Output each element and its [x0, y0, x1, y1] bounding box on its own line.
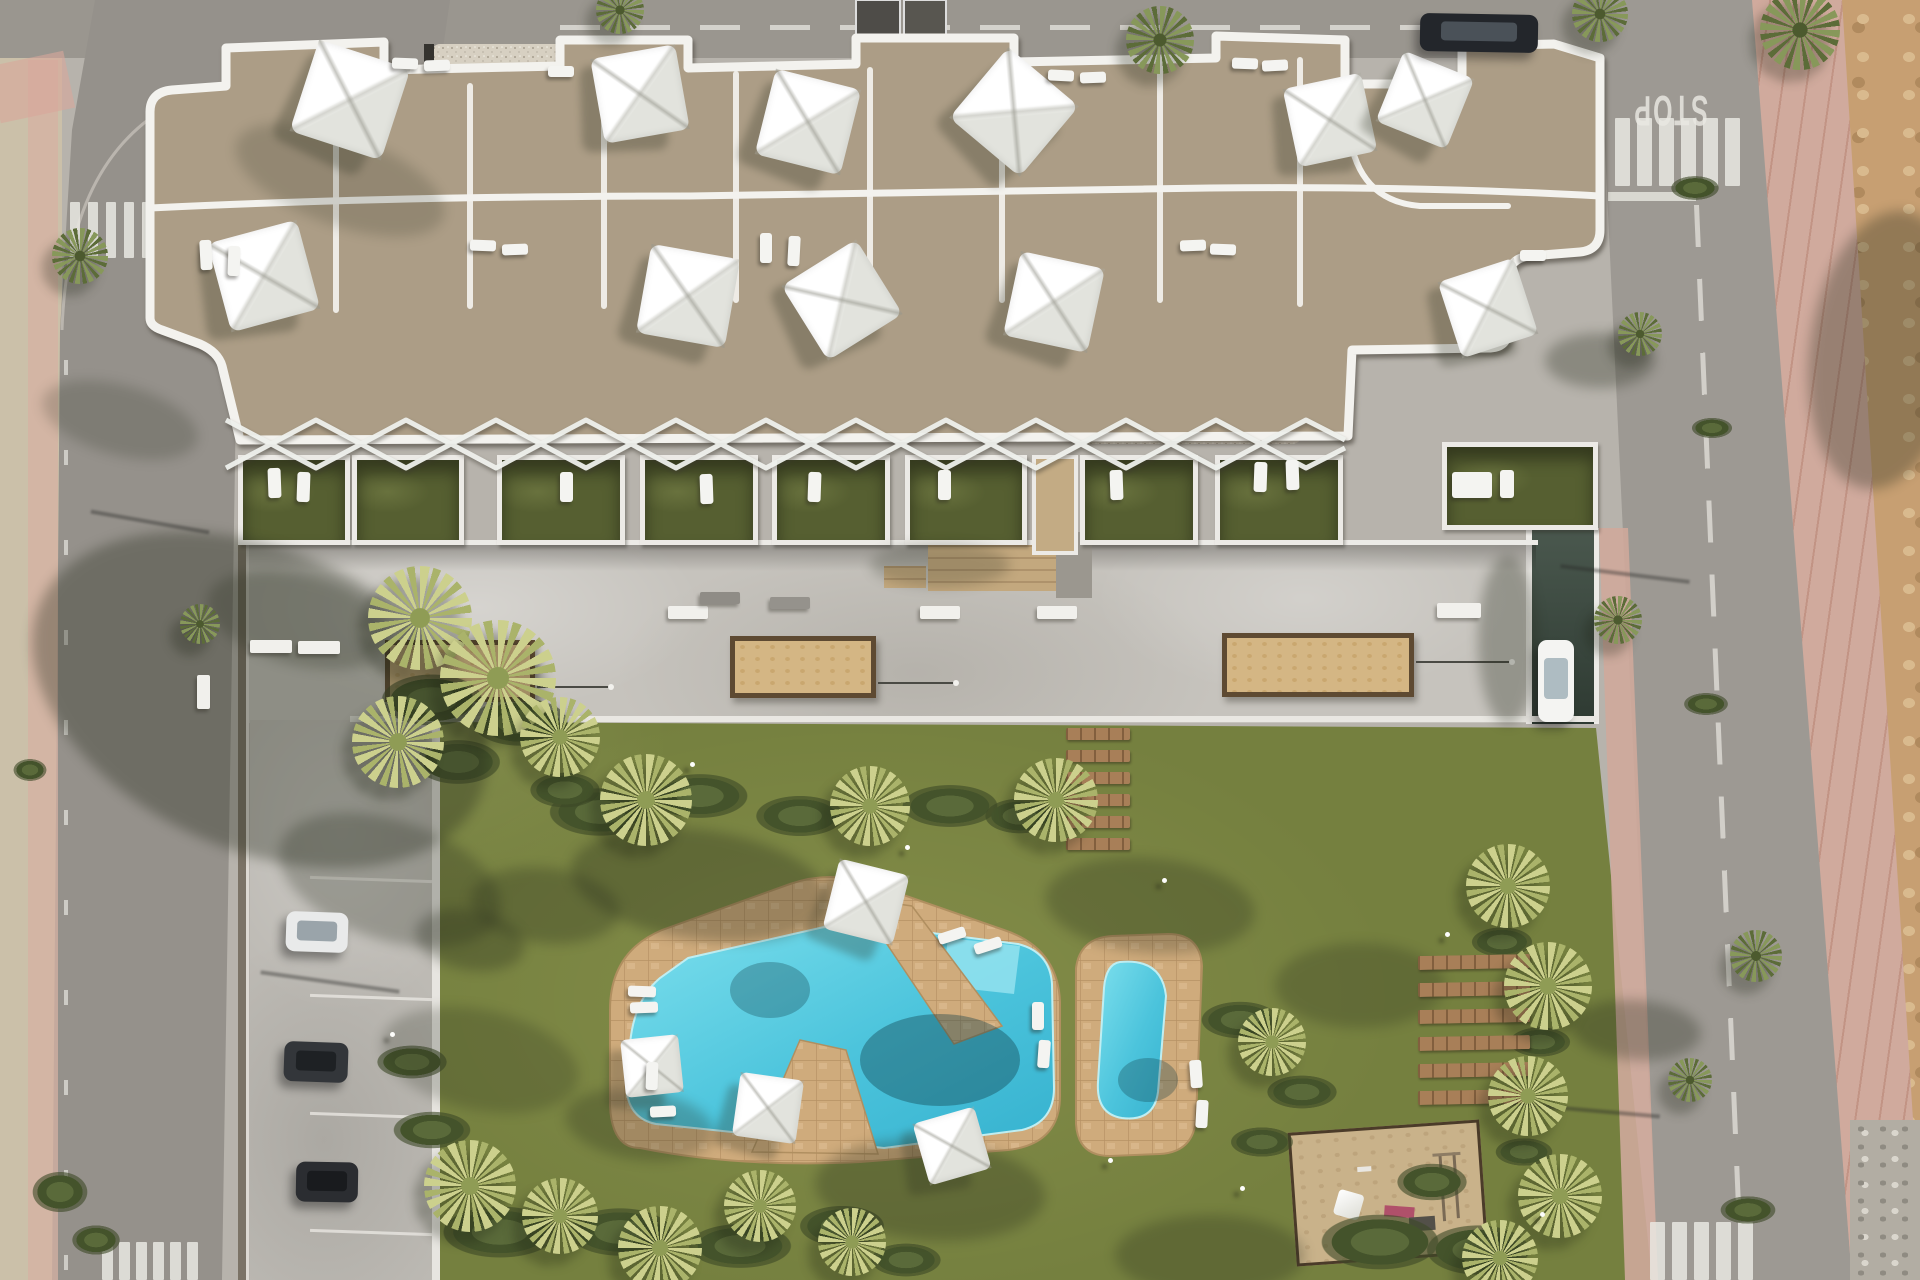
- palm-tree: [818, 1208, 886, 1276]
- palm-tree: [52, 228, 108, 284]
- car: [296, 1161, 359, 1202]
- parasol-umbrella: [636, 244, 740, 348]
- sun-lounger: [1520, 250, 1546, 261]
- sun-lounger: [1262, 59, 1289, 71]
- cast-shadow: [870, 543, 1010, 587]
- sun-lounger: [650, 1105, 677, 1117]
- sun-lounger: [502, 244, 528, 256]
- palm-tree: [1238, 1008, 1306, 1076]
- palm-tree: [1014, 758, 1098, 842]
- cast-shadow: [1478, 555, 1538, 725]
- sun-lounger: [227, 246, 240, 276]
- sun-lounger: [1232, 58, 1258, 70]
- garden-light: [690, 762, 695, 767]
- sun-lounger: [424, 60, 450, 72]
- car-windows: [295, 1050, 337, 1071]
- sun-lounger: [628, 986, 656, 998]
- shrub-cluster: [1669, 175, 1721, 201]
- car: [1538, 640, 1574, 722]
- parasol-umbrella: [732, 1072, 804, 1144]
- garden-light: [390, 1032, 395, 1037]
- bench: [197, 675, 210, 709]
- palm-tree: [1504, 942, 1592, 1030]
- bench: [700, 592, 740, 604]
- shrub-cluster: [1264, 1074, 1340, 1110]
- sun-lounger: [267, 468, 281, 498]
- shrub-cluster: [1690, 417, 1734, 439]
- shrub-cluster: [70, 1224, 122, 1256]
- sun-lounger: [470, 240, 496, 252]
- sun-lounger: [807, 472, 821, 502]
- palm-tree: [180, 604, 220, 644]
- sun-lounger: [296, 472, 310, 502]
- bench: [770, 597, 810, 609]
- garden-light: [1540, 1212, 1545, 1217]
- bench: [668, 606, 708, 619]
- garden-light: [905, 845, 910, 850]
- aerial-scene: STOP: [0, 0, 1920, 1280]
- car: [1420, 13, 1539, 53]
- sun-lounger: [787, 236, 801, 267]
- parasol-umbrella: [590, 44, 690, 144]
- sun-lounger: [646, 1062, 659, 1090]
- garden-light: [1108, 1158, 1113, 1163]
- wooden-plank: [1066, 838, 1130, 850]
- sun-lounger: [760, 233, 772, 263]
- sun-lounger: [199, 240, 213, 271]
- sun-lounger: [1037, 1040, 1051, 1069]
- sun-lounger: [938, 470, 951, 500]
- bench: [920, 606, 960, 619]
- sun-lounger: [1048, 69, 1075, 81]
- sun-lounger: [1210, 244, 1236, 256]
- palm-tree: [1594, 596, 1642, 644]
- palm-tree: [830, 766, 910, 846]
- sun-lounger: [1285, 460, 1299, 490]
- garden-light: [1445, 932, 1450, 937]
- sun-lounger: [560, 472, 573, 502]
- palm-tree: [618, 1206, 702, 1280]
- palm-tree: [352, 696, 444, 788]
- bench: [298, 641, 340, 654]
- shrub-cluster: [1394, 1162, 1470, 1202]
- palm-tree: [724, 1170, 796, 1242]
- sun-lounger: [1080, 72, 1106, 84]
- palm-tree: [1618, 312, 1662, 356]
- palm-tree: [1668, 1058, 1712, 1102]
- sun-lounger: [1195, 1100, 1208, 1129]
- bench: [1437, 603, 1481, 618]
- sun-lounger: [548, 66, 574, 77]
- shrub-cluster: [1718, 1195, 1778, 1225]
- shrub-cluster: [1228, 1126, 1296, 1158]
- car-windows: [297, 920, 337, 941]
- wooden-plank: [1066, 750, 1130, 762]
- palm-tree: [520, 697, 600, 777]
- shrub-cluster: [12, 758, 48, 782]
- shrub-cluster: [527, 771, 603, 809]
- car-windows: [1544, 658, 1567, 699]
- car: [285, 911, 348, 953]
- palm-tree: [1518, 1154, 1602, 1238]
- irrigation-rod: [878, 682, 956, 684]
- sun-lounger: [1253, 462, 1267, 492]
- shrub-cluster: [1682, 692, 1730, 716]
- bench: [250, 640, 292, 653]
- sun-lounger: [1180, 240, 1206, 252]
- sun-lounger: [1189, 1060, 1203, 1089]
- wooden-plank: [1066, 728, 1130, 740]
- palm-tree: [1730, 930, 1782, 982]
- sun-lounger: [630, 1002, 658, 1014]
- palm-tree: [1466, 844, 1550, 928]
- car: [283, 1041, 348, 1083]
- car-windows: [1441, 22, 1517, 42]
- parasol-umbrella: [1003, 251, 1105, 353]
- palm-tree: [424, 1140, 516, 1232]
- garden-light: [1162, 878, 1167, 883]
- shrub-cluster: [30, 1170, 90, 1214]
- sun-lounger: [1452, 472, 1492, 498]
- sun-lounger: [1032, 1002, 1044, 1030]
- sun-lounger: [392, 58, 418, 70]
- palm-tree: [600, 754, 692, 846]
- palm-tree: [1488, 1056, 1568, 1136]
- car-windows: [307, 1170, 347, 1191]
- sun-lounger: [1500, 470, 1514, 498]
- garden-light: [1240, 1186, 1245, 1191]
- bench: [1037, 606, 1077, 619]
- palm-tree: [522, 1178, 598, 1254]
- wooden-plank: [1418, 1035, 1530, 1051]
- palm-tree: [1126, 6, 1194, 74]
- sun-lounger: [1109, 470, 1123, 500]
- sun-lounger: [699, 474, 713, 504]
